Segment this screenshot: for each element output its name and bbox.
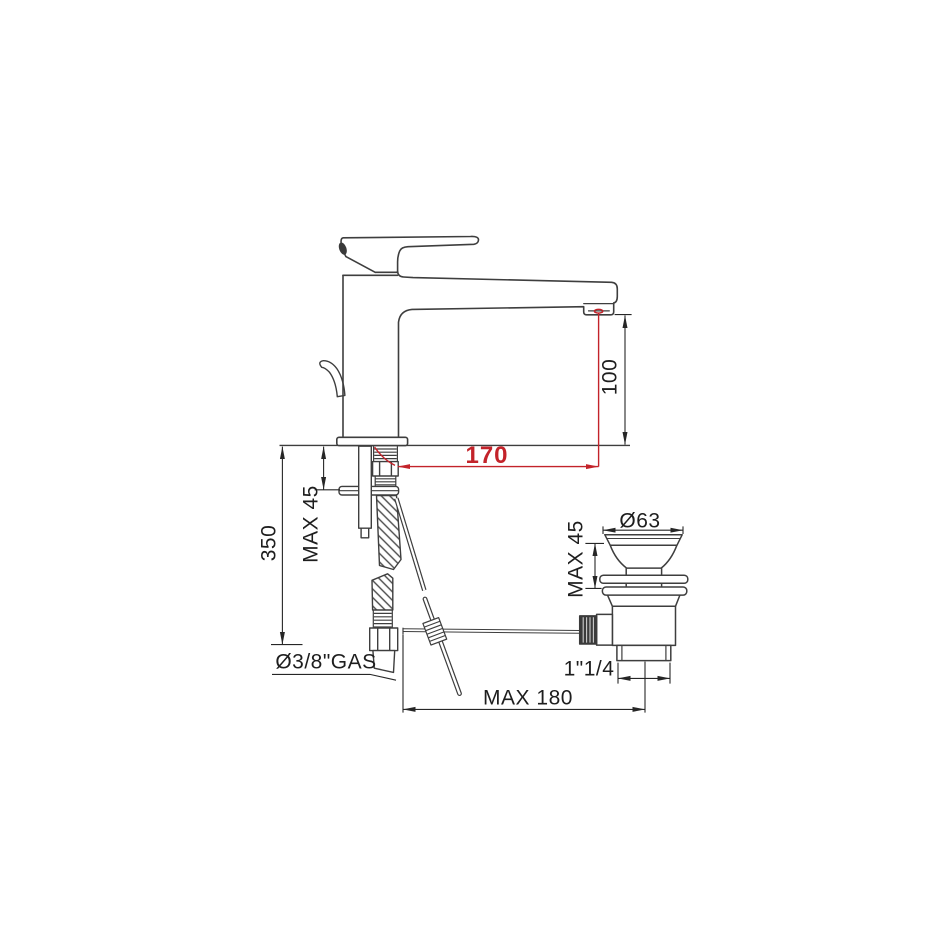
mounting-stud xyxy=(359,446,372,538)
spout-outline xyxy=(398,271,618,437)
dimension-label-hose-length: 350 xyxy=(259,525,280,562)
pullrod-knob xyxy=(320,361,345,397)
dimension-label-drain-thread: 1"1/4 xyxy=(564,659,615,680)
drain-flanges xyxy=(600,575,688,595)
dimension-label-supply-thread: Ø3/8"GAS xyxy=(275,652,376,673)
dim-ext-1-1-4 xyxy=(618,663,670,684)
dimension-label-rod-max-reach: MAX 180 xyxy=(483,688,573,709)
hose-crimp-ribs xyxy=(373,610,392,628)
dimension-label-spout-height: 100 xyxy=(600,359,621,396)
supply-hose-lower xyxy=(372,574,393,610)
handle-lever xyxy=(341,236,478,272)
popup-rod xyxy=(396,498,459,693)
faucet-technical-drawing: 350 MAX 45 100 170 Ø63 MAX 45 1"1/4 MAX … xyxy=(0,0,950,950)
deck-plate xyxy=(337,437,408,445)
drain-pivot-nut xyxy=(580,614,613,645)
drawing-svg xyxy=(0,0,950,950)
dimension-label-drain-diameter: Ø63 xyxy=(619,511,660,532)
drain-assembly xyxy=(580,535,688,661)
rod-coupler xyxy=(423,618,447,645)
drain-body xyxy=(608,595,680,645)
dimension-label-deck-max-left: MAX 45 xyxy=(301,485,322,563)
handle-lever-tip xyxy=(337,241,348,255)
dimension-label-drain-deck-max: MAX 45 xyxy=(566,520,587,598)
faucet-body xyxy=(320,236,617,445)
gas-label-leader xyxy=(272,674,396,680)
drain-tailpiece xyxy=(617,645,671,660)
dimension-label-spout-reach: 170 xyxy=(465,444,508,468)
drain-cap xyxy=(605,535,682,576)
